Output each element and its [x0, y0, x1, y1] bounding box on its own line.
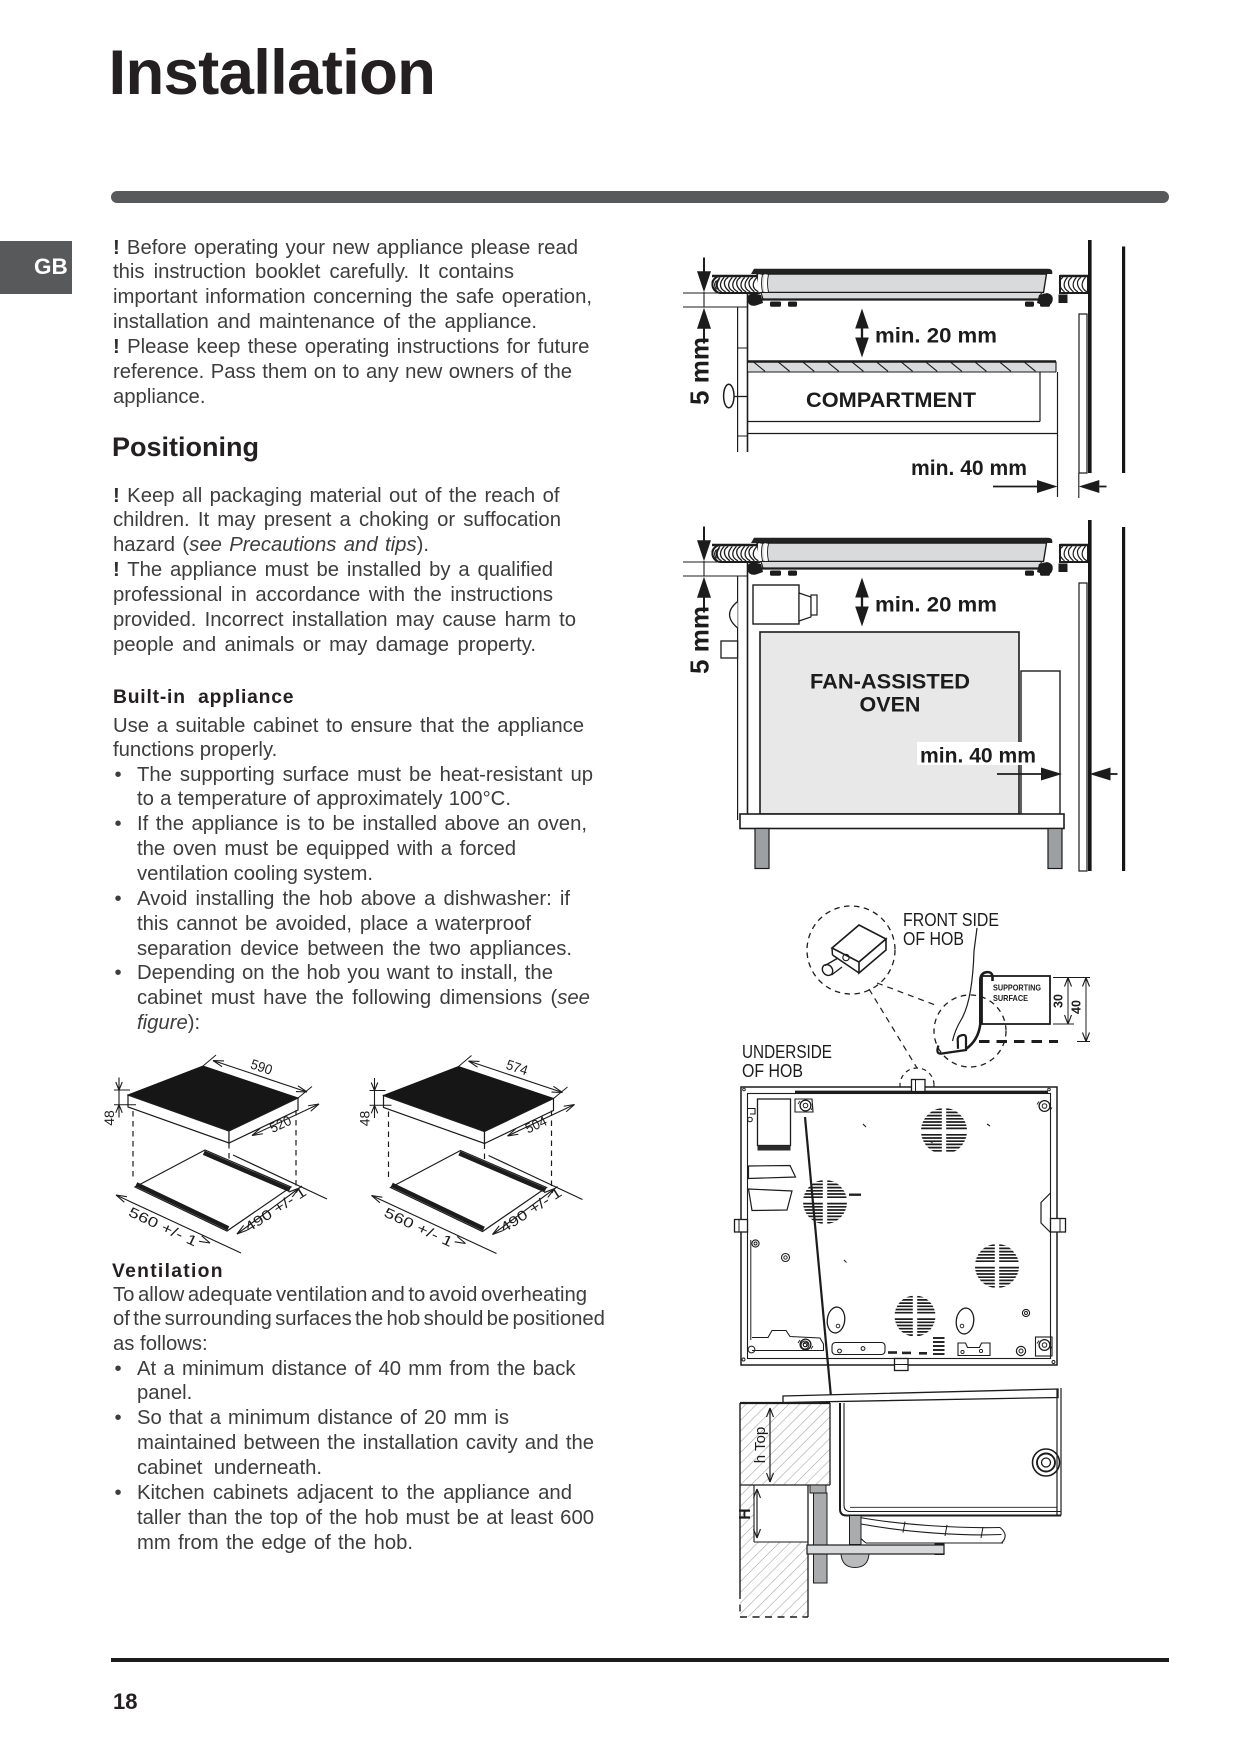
svg-text:SUPPORTING: SUPPORTING: [993, 983, 1041, 993]
svg-text:min. 40 mm: min. 40 mm: [920, 745, 1036, 768]
svg-text:48: 48: [101, 1110, 117, 1126]
svg-text:OVEN: OVEN: [860, 693, 921, 717]
svg-text:h Top: h Top: [752, 1427, 769, 1463]
svg-text:SURFACE: SURFACE: [993, 993, 1028, 1003]
svg-text:48: 48: [357, 1111, 373, 1127]
svg-text:590: 590: [249, 1056, 275, 1078]
svg-text:H: H: [737, 1508, 754, 1519]
svg-text:COMPARTMENT: COMPARTMENT: [806, 388, 976, 412]
svg-text:min. 40 mm: min. 40 mm: [911, 457, 1027, 480]
svg-text:30: 30: [1052, 994, 1066, 1008]
svg-text:OF HOB: OF HOB: [742, 1061, 803, 1081]
svg-text:FAN-ASSISTED: FAN-ASSISTED: [810, 670, 970, 694]
svg-text:574: 574: [504, 1056, 530, 1078]
svg-text:UNDERSIDE: UNDERSIDE: [742, 1042, 832, 1062]
svg-text:40: 40: [1070, 1000, 1084, 1014]
svg-text:OF HOB: OF HOB: [903, 929, 964, 949]
svg-text:FRONT SIDE: FRONT SIDE: [903, 910, 999, 930]
